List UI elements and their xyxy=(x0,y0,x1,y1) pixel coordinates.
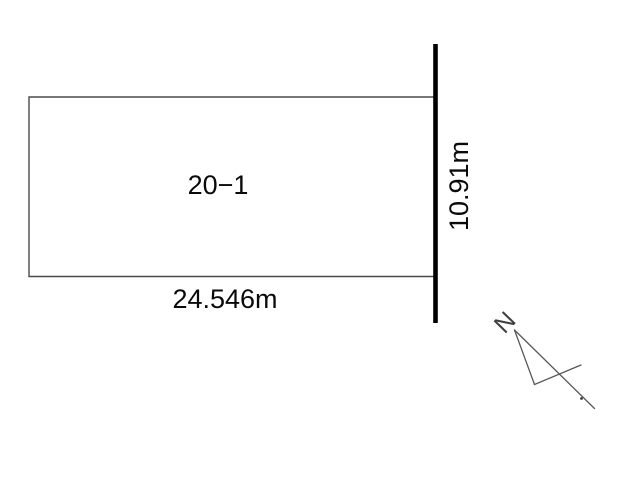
site-plan-page: N 20−1 24.546m 10.91m xyxy=(0,0,640,480)
north-arrow-shaft xyxy=(515,330,595,409)
north-arrow-icon: N xyxy=(488,306,595,409)
depth-dimension-label: 10.91m xyxy=(445,126,473,246)
north-arrow-crossbar xyxy=(535,365,582,385)
north-arrow-head-edge xyxy=(515,330,535,385)
north-arrow-dot xyxy=(580,397,583,400)
width-dimension-label: 24.546m xyxy=(145,285,305,313)
lot-number-label: 20−1 xyxy=(158,171,278,199)
site-plan-drawing: N xyxy=(0,0,640,480)
